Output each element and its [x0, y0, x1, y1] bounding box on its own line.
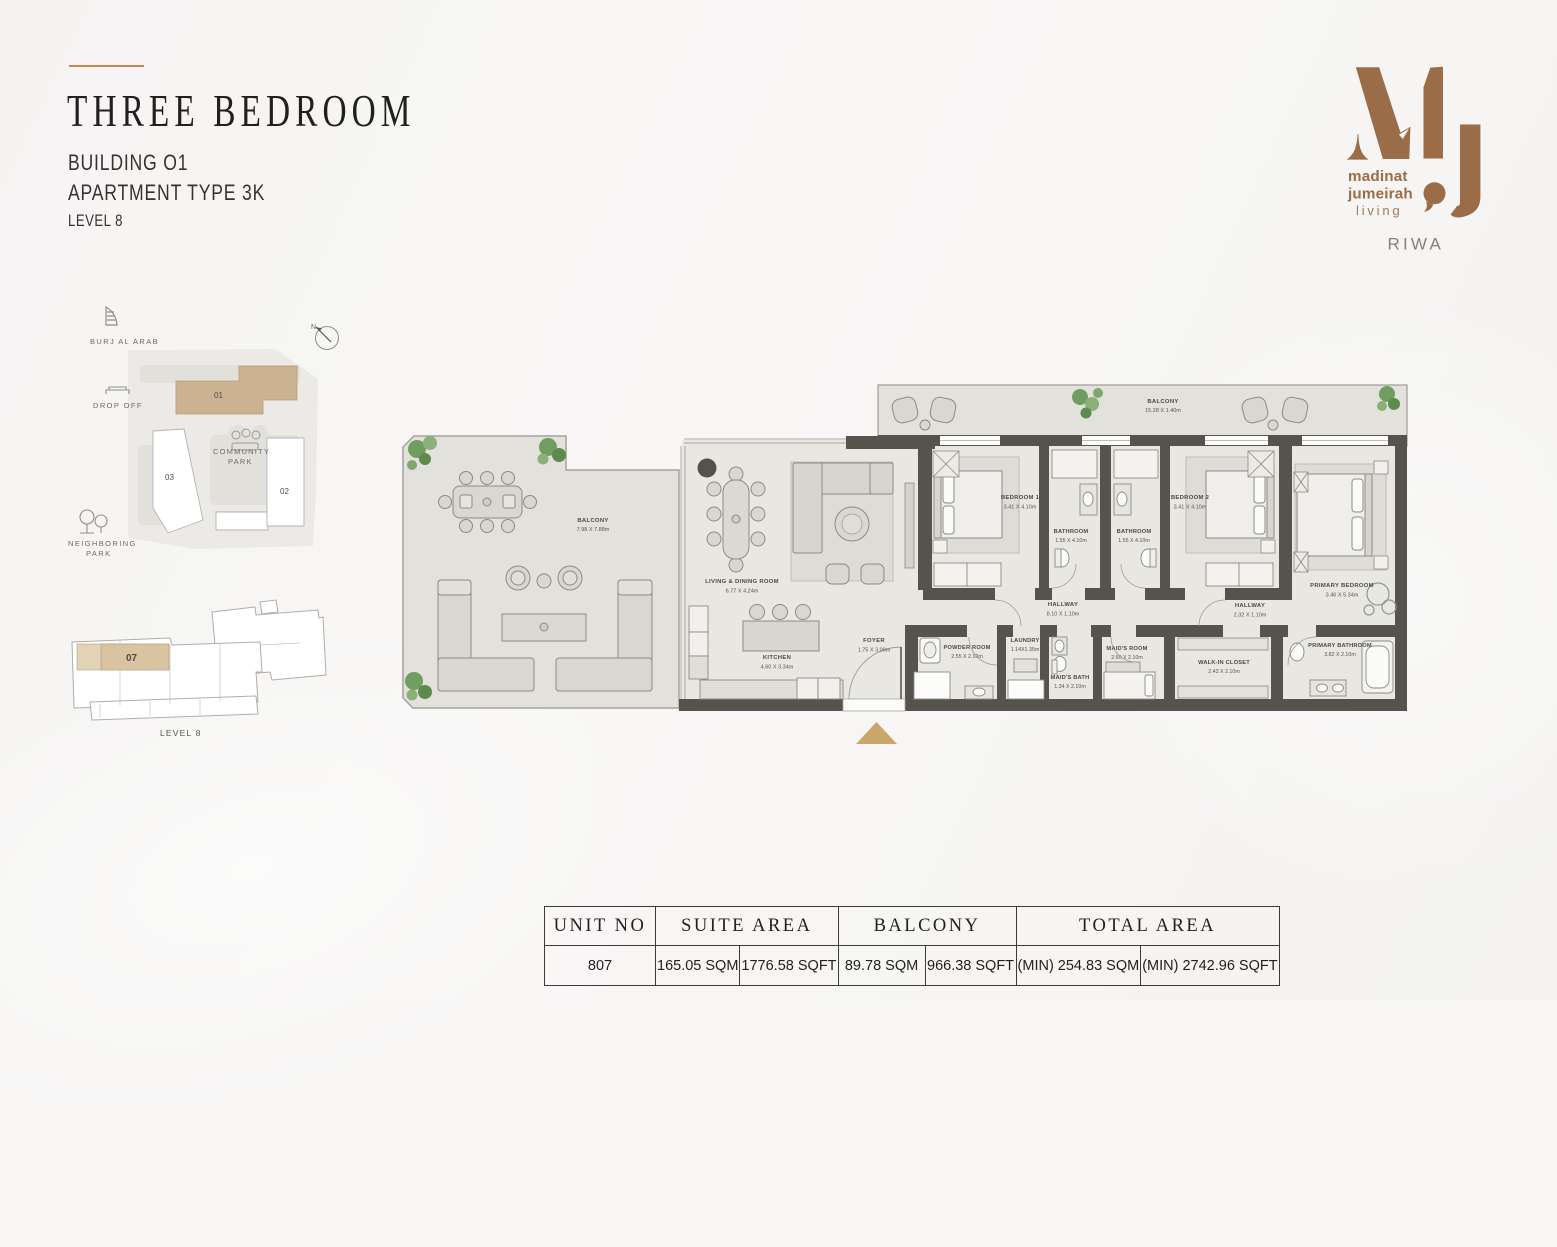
svg-text:1.34 X 2.10m: 1.34 X 2.10m	[1054, 684, 1086, 690]
svg-text:02: 02	[280, 487, 289, 496]
svg-text:LEVEL 8: LEVEL 8	[160, 728, 202, 738]
svg-text:2.55 X 2.10m: 2.55 X 2.10m	[951, 654, 983, 660]
svg-text:PRIMARY BATHROOM: PRIMARY BATHROOM	[1308, 643, 1372, 649]
svg-text:07: 07	[126, 653, 138, 664]
svg-text:1.14X1.35m: 1.14X1.35m	[1011, 647, 1040, 653]
svg-text:N: N	[311, 324, 316, 331]
svg-text:6.77 X 4.24m: 6.77 X 4.24m	[726, 589, 759, 595]
svg-text:KITCHEN: KITCHEN	[763, 655, 791, 661]
svg-text:madinat: madinat	[1348, 168, 1408, 185]
svg-text:15.28 X 1.40m: 15.28 X 1.40m	[1145, 408, 1181, 414]
svg-text:2.43 X 2.10m: 2.43 X 2.10m	[1208, 669, 1240, 675]
svg-text:7.98 X 7.88m: 7.98 X 7.88m	[577, 527, 610, 533]
svg-text:01: 01	[214, 391, 223, 400]
svg-text:PARK: PARK	[228, 457, 253, 466]
svg-text:BATHROOM: BATHROOM	[1054, 529, 1089, 535]
svg-text:BALCONY: BALCONY	[577, 518, 608, 524]
svg-text:POWDER ROOM: POWDER ROOM	[943, 645, 990, 651]
svg-text:MAID'S BATH: MAID'S BATH	[1051, 675, 1090, 681]
svg-text:RIWA: RIWA	[1388, 235, 1445, 254]
svg-text:3.41 X 4.10m: 3.41 X 4.10m	[1174, 505, 1207, 511]
svg-text:BATHROOM: BATHROOM	[1117, 529, 1152, 535]
svg-text:3.46 X 5.34m: 3.46 X 5.34m	[1326, 593, 1359, 599]
svg-text:8.10 X 1.10m: 8.10 X 1.10m	[1047, 612, 1080, 618]
svg-text:jumeirah: jumeirah	[1347, 186, 1413, 203]
svg-text:1.55 X 4.10m: 1.55 X 4.10m	[1055, 538, 1087, 544]
svg-text:COMMUNITY: COMMUNITY	[213, 447, 270, 456]
svg-text:3.82 X 2.10m: 3.82 X 2.10m	[1324, 652, 1356, 658]
svg-text:HALLWAY: HALLWAY	[1048, 602, 1078, 608]
svg-text:NEIGHBORING: NEIGHBORING	[68, 539, 137, 548]
svg-text:WALK-IN CLOSET: WALK-IN CLOSET	[1198, 660, 1250, 666]
svg-text:LAUNDRY: LAUNDRY	[1011, 638, 1040, 644]
svg-text:LIVING & DINING ROOM: LIVING & DINING ROOM	[705, 579, 779, 585]
svg-text:BEDROOM 1: BEDROOM 1	[1001, 495, 1040, 501]
svg-text:03: 03	[165, 473, 174, 482]
svg-text:FOYER: FOYER	[863, 638, 885, 644]
svg-text:BALCONY: BALCONY	[1147, 399, 1178, 405]
svg-text:1.55 X 4.10m: 1.55 X 4.10m	[1118, 538, 1150, 544]
svg-text:BEDROOM 2: BEDROOM 2	[1171, 495, 1210, 501]
svg-text:PRIMARY BEDROOM: PRIMARY BEDROOM	[1310, 583, 1374, 589]
svg-text:living: living	[1356, 203, 1402, 218]
svg-text:PARK: PARK	[86, 549, 111, 558]
svg-text:1.75 X 3.09m: 1.75 X 3.09m	[858, 648, 891, 654]
svg-text:2.32 X 1.10m: 2.32 X 1.10m	[1234, 613, 1267, 619]
svg-text:HALLWAY: HALLWAY	[1235, 603, 1265, 609]
svg-text:4.60 X 3.34m: 4.60 X 3.34m	[761, 665, 794, 671]
svg-text:3.41 X 4.10m: 3.41 X 4.10m	[1004, 505, 1037, 511]
svg-text:DROP OFF: DROP OFF	[93, 401, 143, 410]
svg-text:BURJ AL ARAB: BURJ AL ARAB	[90, 337, 159, 346]
